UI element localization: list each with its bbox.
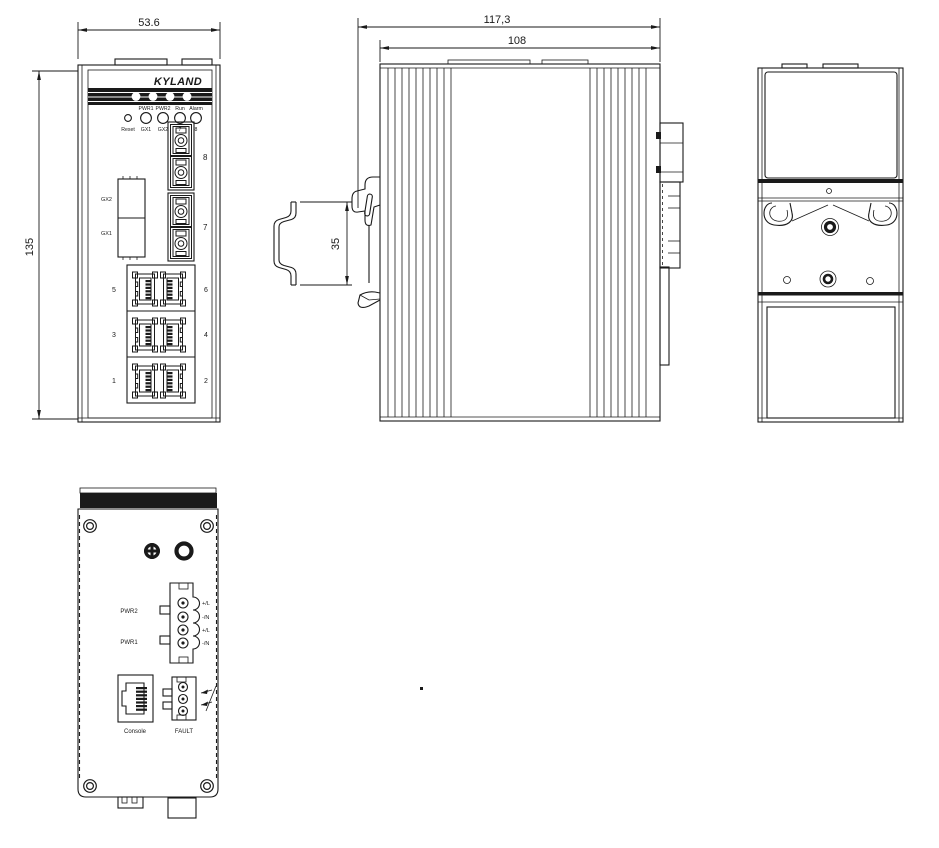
din-bracket-side — [656, 123, 683, 365]
band-led-dot — [183, 92, 192, 101]
rj45-port-3 — [133, 318, 158, 352]
gx-slot-block: GX2 GX1 — [101, 176, 145, 260]
rear-top-tab — [782, 64, 807, 68]
led-label-alarm: Alarm — [189, 106, 203, 112]
bracket-screw — [822, 219, 839, 236]
front-panel-edge — [80, 493, 217, 508]
bracket-screw — [820, 271, 836, 287]
rear-top-tab — [823, 64, 858, 68]
ground-terminal-icon — [144, 543, 160, 559]
rear-lower-panel — [758, 307, 903, 418]
terminal-pins — [179, 683, 188, 716]
pwr1-label: PWR1 — [120, 640, 138, 646]
led-gx1 — [141, 113, 152, 124]
rj45-label-6: 6 — [204, 287, 208, 294]
terminal-tab — [163, 689, 172, 696]
rj45-port-4 — [161, 318, 186, 352]
fault-terminal-block: FAULT — [163, 677, 216, 735]
rj45-port-1 — [133, 364, 158, 398]
cooling-fins-right — [590, 68, 646, 417]
drawing-canvas: 53.6 135 KYLAND — [0, 0, 939, 848]
led-band — [88, 88, 212, 105]
bottom-protrusions — [118, 797, 196, 818]
terminal-tab — [163, 702, 172, 709]
pwr2-label: PWR2 — [120, 609, 138, 615]
side-top-strip — [448, 60, 530, 64]
din-rail-profile — [274, 202, 296, 285]
din-clip-side — [352, 177, 380, 307]
dim-front-width-label: 53.6 — [138, 17, 159, 29]
band-led-dot — [149, 92, 158, 101]
dimension-front-width: 53.6 — [78, 17, 220, 59]
terminal-label-1: +/L — [202, 601, 210, 607]
dim-front-height-label: 135 — [24, 238, 36, 256]
bottom-body — [78, 488, 218, 797]
bracket-hole — [827, 189, 832, 194]
led-indicator-block: PWR1 PWR2 Run Alarm Reset GX1 GX2 7 8 — [121, 106, 203, 133]
rj45-port-grid: 5 6 3 4 1 2 — [112, 265, 208, 403]
rj45-port-6 — [161, 272, 186, 306]
led-label-run: Run — [175, 106, 185, 112]
dim-din-rail-label: 35 — [330, 238, 342, 250]
rj45-label-3: 3 — [112, 332, 116, 339]
dim-depth-body-label: 108 — [508, 35, 526, 47]
corner-screw — [201, 780, 214, 793]
corner-screw — [84, 780, 97, 793]
bracket-hole — [784, 277, 791, 284]
fiber-port-group-7: 7 — [168, 193, 208, 261]
fiber-port-7-label: 7 — [203, 223, 208, 232]
side-view: 117,3 108 — [345, 10, 690, 430]
mounting-hole — [177, 544, 192, 559]
rj45-port-5 — [133, 272, 158, 306]
slot-gx1-label: GX1 — [101, 231, 112, 237]
cooling-fins-left — [388, 68, 451, 417]
led-gx2 — [158, 113, 169, 124]
bracket-hole — [867, 278, 874, 285]
power-terminal-block: PWR2 PWR1 +/L -/N +/L -/N — [120, 583, 209, 663]
fault-label: FAULT — [175, 729, 194, 735]
slot-gx2-label: GX2 — [101, 197, 112, 203]
dimension-front-height: 135 — [24, 71, 78, 419]
rear-upper-panel — [765, 72, 897, 178]
front-top-tab — [115, 59, 167, 65]
sc-connector — [171, 196, 192, 227]
bottom-view: PWR2 PWR1 +/L -/N +/L -/N Console — [60, 480, 245, 830]
front-top-tab — [182, 59, 212, 65]
brand-logo: KYLAND — [154, 76, 202, 88]
terminal-tab — [160, 636, 170, 644]
rear-body — [758, 64, 903, 422]
corner-screw — [84, 520, 97, 533]
terminal-label-3: +/L — [202, 628, 210, 634]
led-label-gx2: GX2 — [158, 127, 168, 133]
corner-screw — [201, 520, 214, 533]
rj45-label-2: 2 — [204, 378, 208, 385]
led-label-pwr1: PWR1 — [139, 106, 154, 112]
band-led-dot — [166, 92, 175, 101]
console-port: Console — [118, 675, 153, 735]
band-led-dot — [132, 92, 141, 101]
stray-mark — [420, 687, 423, 690]
rj45-label-1: 1 — [112, 378, 116, 385]
terminal-label-4: -/N — [202, 641, 209, 647]
terminal-tab — [160, 606, 170, 614]
fiber-port-group-8: 8 — [168, 122, 208, 190]
dim-depth-total-label: 117,3 — [484, 14, 511, 26]
reset-button — [125, 115, 132, 122]
led-label-8: 8 — [195, 127, 198, 133]
relay-contact-icon — [201, 686, 216, 711]
dimension-depth-body: 108 — [380, 35, 660, 62]
sc-connector — [171, 157, 192, 188]
sc-connector — [171, 228, 192, 259]
rj45-label-5: 5 — [112, 287, 116, 294]
side-top-strip — [542, 60, 588, 64]
fiber-port-8-label: 8 — [203, 153, 208, 162]
front-view: 53.6 135 KYLAND — [20, 10, 255, 440]
reset-label: Reset — [121, 127, 135, 133]
console-label: Console — [124, 729, 147, 735]
led-label-gx1: GX1 — [141, 127, 151, 133]
terminal-pins — [178, 598, 188, 648]
din-bracket-rear — [758, 179, 903, 302]
rj45-label-4: 4 — [204, 332, 208, 339]
rj45-port-2 — [161, 364, 186, 398]
terminal-label-2: -/N — [202, 615, 209, 621]
rear-view — [750, 55, 915, 430]
led-label-pwr2: PWR2 — [156, 106, 171, 112]
